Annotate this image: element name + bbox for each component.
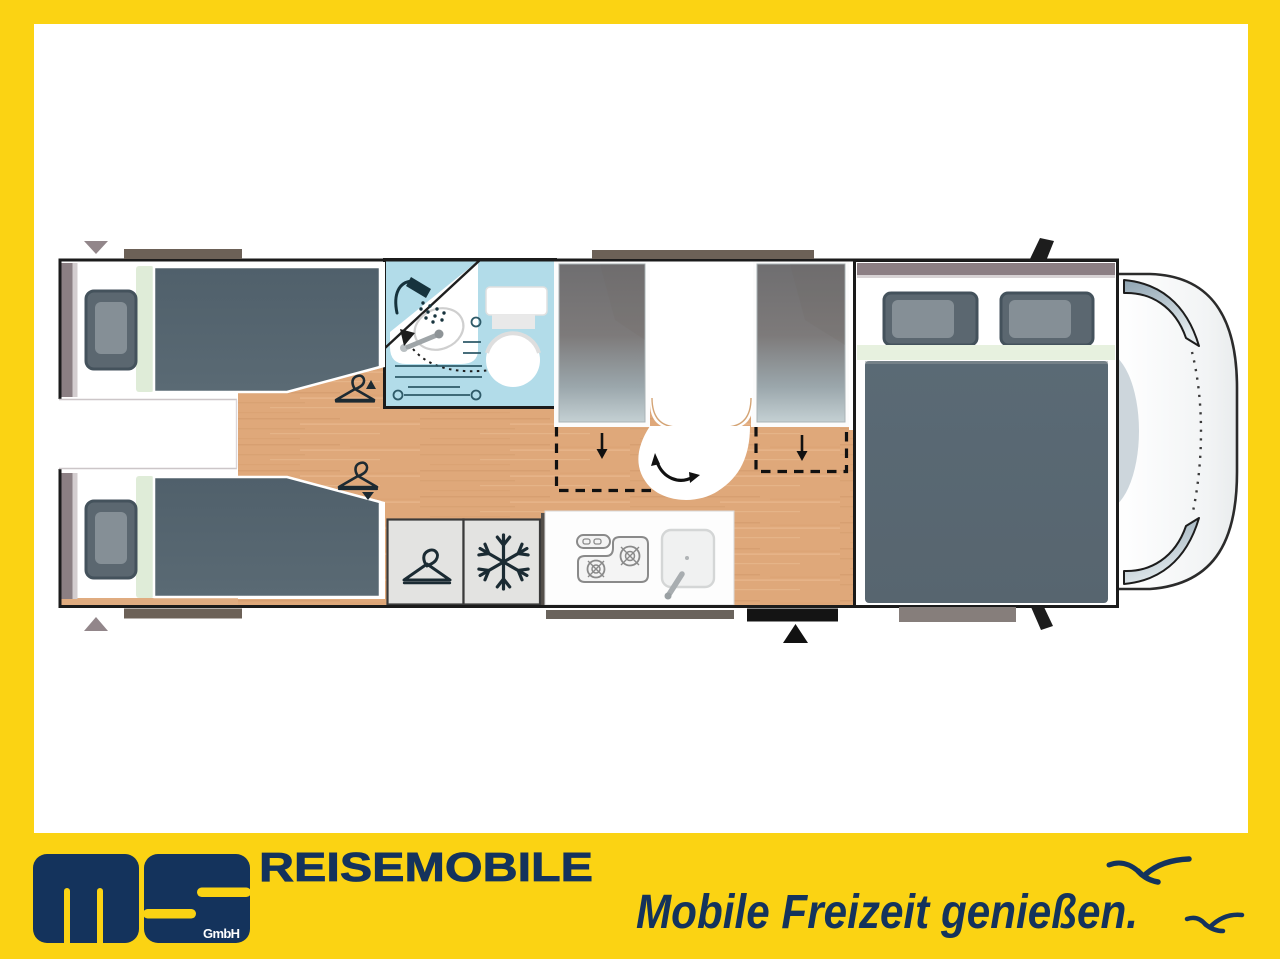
svg-text:Mobile Freizeit genießen.: Mobile Freizeit genießen. — [636, 886, 1138, 939]
svg-text:GmbH: GmbH — [203, 926, 240, 941]
svg-text:REISEMOBILE: REISEMOBILE — [259, 844, 593, 890]
